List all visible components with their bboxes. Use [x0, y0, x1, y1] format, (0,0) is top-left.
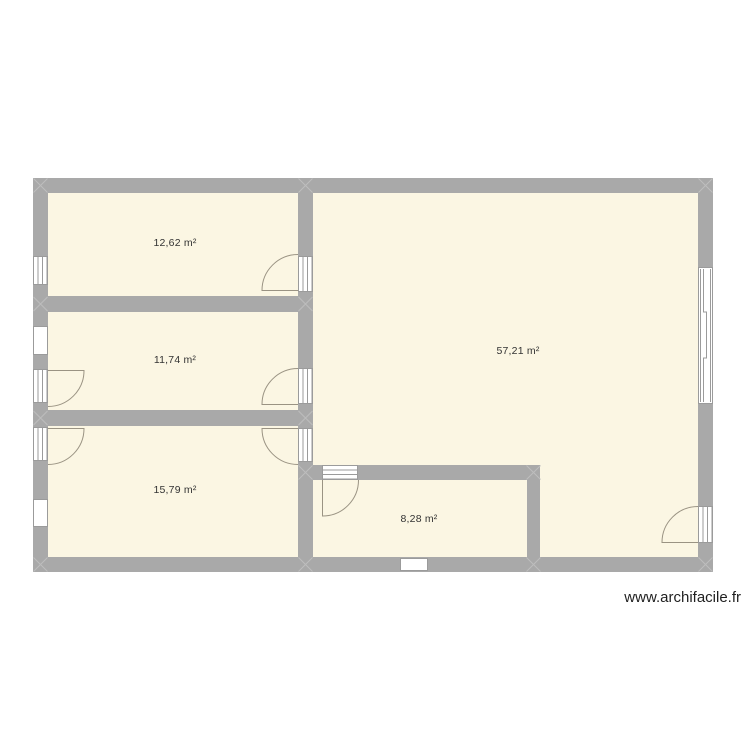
window-bottom-icon	[400, 558, 428, 571]
window-left-middle-icon	[33, 326, 48, 355]
window-left-bottom-icon	[33, 499, 48, 527]
room-4-floor-main	[313, 193, 698, 465]
sliding-window-right-icon	[698, 267, 713, 404]
door-room3-frame	[298, 428, 313, 462]
door-right-frame	[698, 506, 713, 543]
door-room2-frame	[298, 368, 313, 404]
room-2-area-label: 11,74 m²	[154, 354, 196, 366]
door-left-room2-frame	[33, 369, 48, 403]
door-left-room3-frame	[33, 427, 48, 461]
room-5-area-label: 8,28 m²	[401, 513, 438, 525]
door-room5-frame	[322, 465, 358, 480]
floor-plan-canvas: 12,62 m² 11,74 m² 15,79 m² 57,21 m² 8,28…	[0, 0, 750, 750]
room-4-floor-lower	[540, 465, 698, 557]
room-3-area-label: 15,79 m²	[153, 484, 196, 496]
door-room1-frame	[298, 256, 313, 292]
window-left-top-icon	[33, 256, 48, 285]
room-4-area-label: 57,21 m²	[496, 345, 539, 357]
room-1-area-label: 12,62 m²	[153, 237, 196, 249]
archifacile-watermark: www.archifacile.fr	[624, 589, 741, 606]
